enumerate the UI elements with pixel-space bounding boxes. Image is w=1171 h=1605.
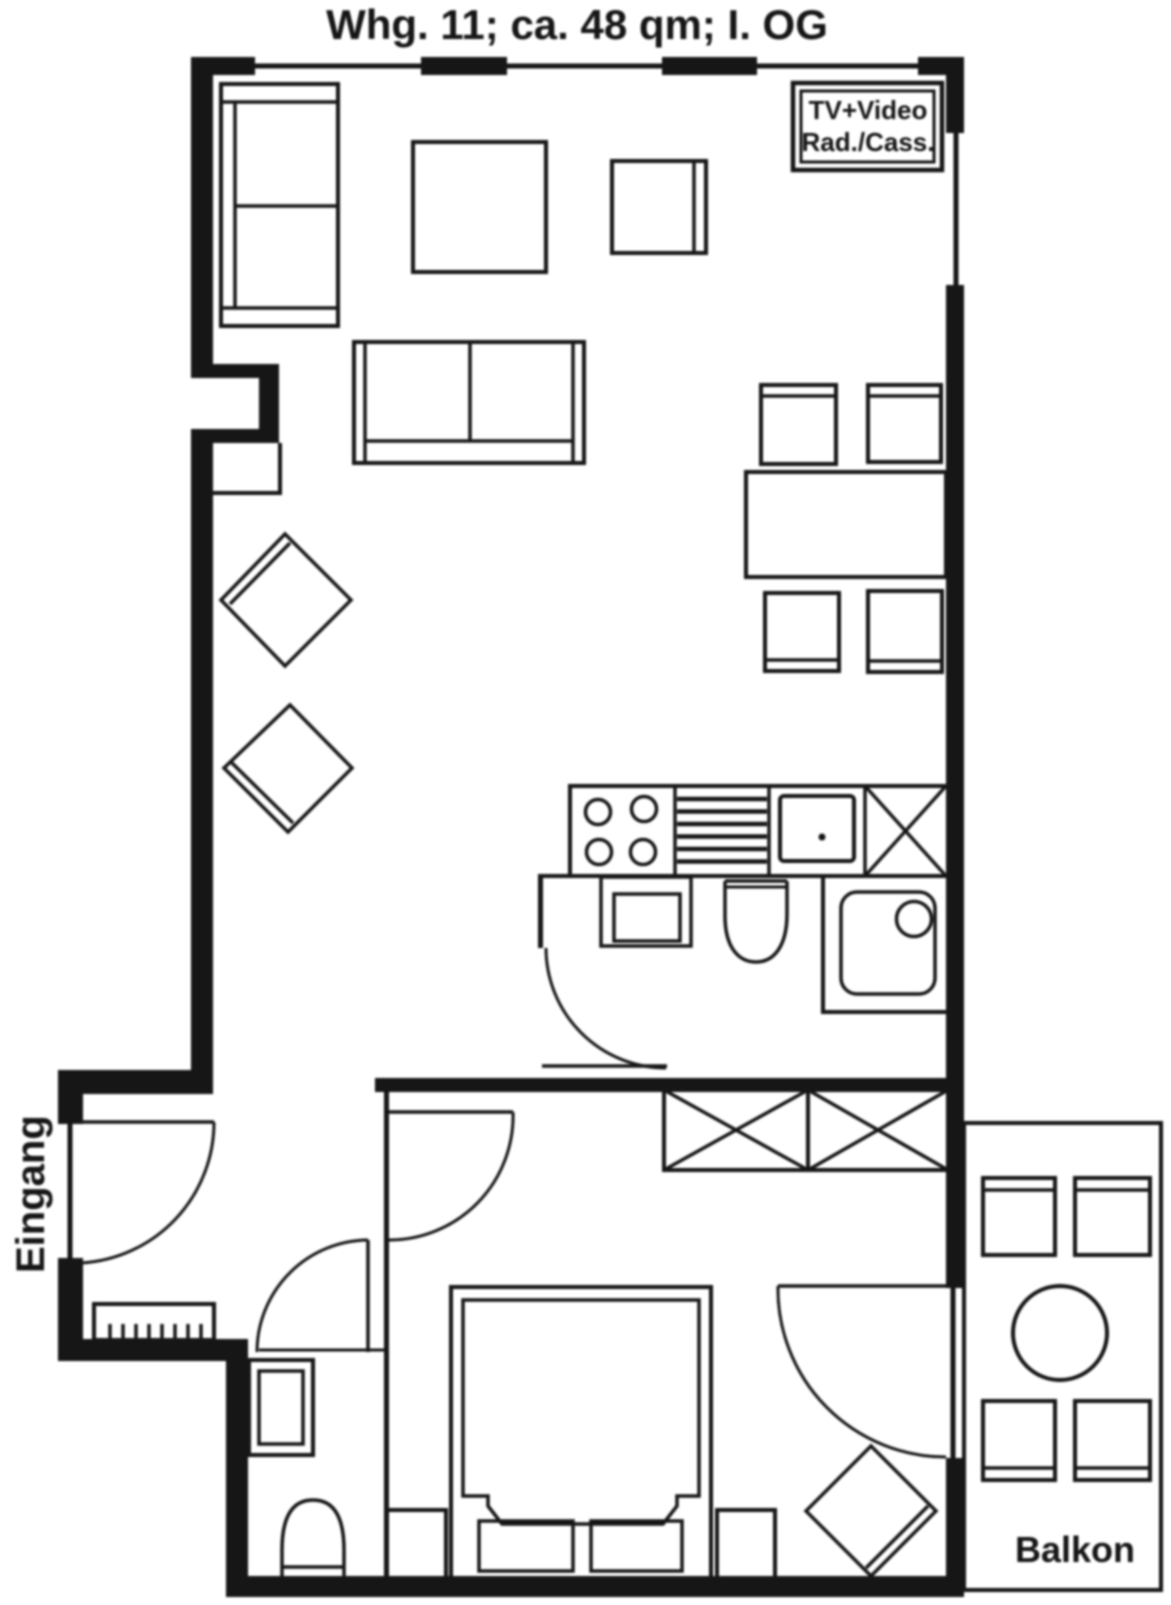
svg-text:Eingang: Eingang	[9, 1115, 53, 1273]
svg-text:TV+Video: TV+Video	[809, 95, 928, 125]
svg-text:Whg. 11; ca. 48 qm; I. OG: Whg. 11; ca. 48 qm; I. OG	[326, 1, 828, 48]
svg-text:Rad./Cass.: Rad./Cass.	[802, 127, 935, 157]
svg-text:Balkon: Balkon	[1015, 1529, 1135, 1570]
